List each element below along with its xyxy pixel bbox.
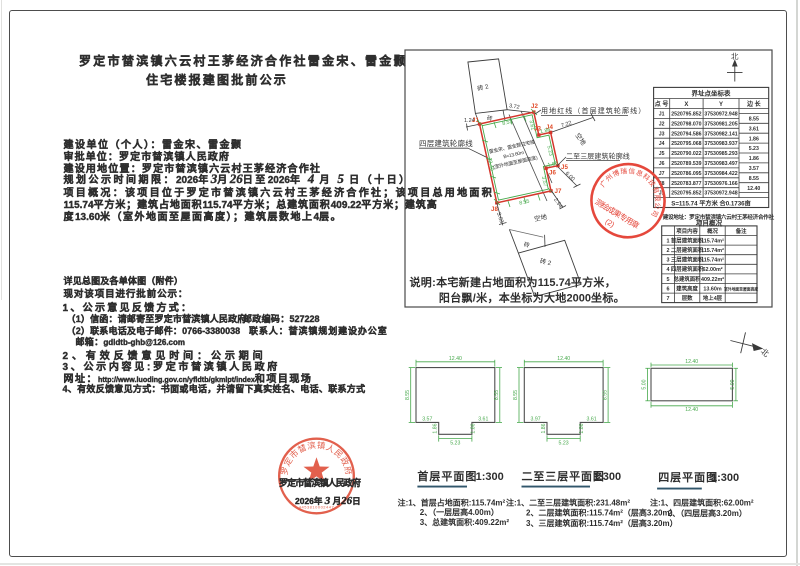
- svg-text:115.74m²: 115.74m²: [701, 258, 724, 264]
- svg-text:5.23: 5.23: [450, 441, 460, 447]
- svg-text:1.86: 1.86: [433, 423, 439, 433]
- svg-text:37530972.948: 37530972.948: [704, 112, 737, 118]
- svg-text:2520798.070: 2520798.070: [671, 121, 701, 127]
- svg-text:8.55: 8.55: [749, 176, 759, 182]
- svg-text:1.86: 1.86: [579, 423, 585, 433]
- svg-text:首层平面图: 首层平面图: [417, 469, 477, 483]
- svg-text:概况: 概况: [707, 227, 718, 235]
- svg-text:1.86: 1.86: [749, 136, 759, 142]
- svg-text:边 长: 边 长: [746, 100, 762, 108]
- svg-text:1.86: 1.86: [471, 423, 477, 433]
- svg-text:J1: J1: [472, 117, 479, 124]
- svg-text:8.55: 8.55: [513, 390, 519, 400]
- svg-text:3.61: 3.61: [749, 126, 759, 132]
- svg-text:7.22: 7.22: [561, 120, 573, 129]
- svg-text:12.40: 12.40: [747, 186, 760, 192]
- svg-text:2520786.095: 2520786.095: [671, 171, 701, 177]
- svg-text:S=115.74 平方米 合0.1736亩: S=115.74 平方米 合0.1736亩: [671, 199, 751, 207]
- svg-text:2520795.852: 2520795.852: [671, 191, 701, 197]
- svg-text:Y: Y: [719, 102, 723, 108]
- svg-text:注:1、首层占地面积:115.74m²: 注:1、首层占地面积:115.74m²: [398, 497, 506, 507]
- svg-text:3、总建筑面积:409.22m²: 3、总建筑面积:409.22m²: [420, 517, 510, 527]
- svg-text:3.61: 3.61: [587, 417, 597, 423]
- svg-text:37530972.948: 37530972.948: [704, 191, 737, 197]
- svg-text:2520783.877: 2520783.877: [671, 181, 701, 187]
- svg-text:2、二层建筑面积:115.74m²（层高3.20m）: 2、二层建筑面积:115.74m²（层高3.20m）: [526, 508, 678, 518]
- svg-text:J6: J6: [549, 170, 556, 177]
- svg-text:1:300: 1:300: [711, 472, 739, 484]
- svg-text:空地: 空地: [533, 212, 548, 224]
- svg-text:砖: 砖: [523, 240, 531, 249]
- svg-text:37530985.293: 37530985.293: [704, 151, 737, 157]
- svg-text:7: 7: [667, 296, 670, 302]
- svg-text:阳台飘/米，本坐标为大地2000坐标。: 阳台飘/米，本坐标为大地2000坐标。: [439, 291, 625, 305]
- svg-text:115.74m²: 115.74m²: [701, 238, 724, 244]
- svg-text:5.23: 5.23: [545, 145, 553, 156]
- svg-text:1:300: 1:300: [476, 471, 504, 483]
- svg-text:5.00: 5.00: [730, 379, 736, 389]
- svg-text:J7: J7: [659, 171, 665, 177]
- svg-text:37530984.422: 37530984.422: [704, 171, 737, 177]
- svg-text:建筑高度: 建筑高度: [675, 284, 698, 292]
- svg-text:2520789.539: 2520789.539: [671, 161, 701, 167]
- svg-text:注:1、二至三层建筑面积:231.48m²: 注:1、二至三层建筑面积:231.48m²: [506, 497, 630, 507]
- svg-text:3.57: 3.57: [749, 166, 759, 172]
- svg-text:界址点坐标表: 界址点坐标表: [692, 89, 732, 98]
- svg-text:1.86: 1.86: [547, 161, 558, 169]
- svg-text:用地红线（首层建筑轮廓线）: 用地红线（首层建筑轮廓线）: [541, 106, 646, 115]
- svg-text:首层建筑面积: 首层建筑面积: [671, 236, 704, 244]
- svg-text:室外地面至屋面高度: 室外地面至屋面高度: [724, 286, 758, 291]
- svg-text:13.60m: 13.60m: [703, 286, 721, 292]
- svg-text:三层建筑面积: 三层建筑面积: [671, 256, 704, 264]
- svg-text:12.40: 12.40: [685, 407, 698, 413]
- svg-text:3.57: 3.57: [540, 176, 548, 187]
- svg-text:8.55: 8.55: [602, 390, 608, 400]
- svg-text:说明:本宅新建占地面积为115.74平方米，: 说明:本宅新建占地面积为115.74平方米，: [410, 275, 617, 289]
- svg-text:37530981.205: 37530981.205: [704, 121, 737, 127]
- svg-text:37530983.937: 37530983.937: [704, 141, 737, 147]
- svg-text:3.63: 3.63: [495, 212, 504, 224]
- svg-text:J5: J5: [659, 151, 665, 157]
- svg-text:J2: J2: [531, 103, 538, 110]
- svg-text:北: 北: [731, 52, 739, 61]
- svg-text:二至三层建筑轮廓线: 二至三层建筑轮廓线: [566, 152, 630, 161]
- svg-text:1:300: 1:300: [593, 471, 621, 483]
- svg-text:8.55: 8.55: [405, 390, 411, 400]
- svg-text:409.22m²: 409.22m²: [701, 277, 724, 283]
- svg-text:2520795.068: 2520795.068: [671, 141, 701, 147]
- svg-text:总建筑面积: 总建筑面积: [674, 275, 702, 283]
- svg-text:2520794.586: 2520794.586: [671, 131, 701, 137]
- svg-text:J2: J2: [659, 121, 665, 127]
- svg-text:1: 1: [667, 238, 670, 244]
- svg-text:J7: J7: [555, 188, 562, 195]
- svg-text:5.23: 5.23: [559, 441, 569, 447]
- svg-text:3.97: 3.97: [531, 417, 541, 423]
- svg-text:四层建筑轮廓线: 四层建筑轮廓线: [419, 138, 473, 148]
- svg-text:二层建筑面积: 二层建筑面积: [671, 246, 704, 254]
- svg-text:项目内容: 项目内容: [676, 227, 698, 235]
- svg-text:3.61: 3.61: [478, 417, 488, 423]
- svg-text:(2): (2): [604, 217, 617, 230]
- svg-text:J1: J1: [659, 112, 665, 118]
- svg-text:X: X: [684, 102, 688, 108]
- svg-text:2: 2: [667, 248, 670, 254]
- svg-text:地上4层: 地上4层: [703, 294, 723, 302]
- svg-text:J5: J5: [561, 164, 568, 171]
- svg-text:四层建筑面积: 四层建筑面积: [671, 265, 704, 273]
- svg-text:3: 3: [667, 258, 670, 264]
- svg-text:点 号: 点 号: [655, 100, 669, 108]
- svg-text:2、（一层层高4.00m）: 2、（一层层高4.00m）: [420, 507, 499, 517]
- svg-text:砖 2: 砖 2: [539, 257, 552, 267]
- svg-text:4: 4: [667, 267, 670, 273]
- svg-text:37530982.141: 37530982.141: [704, 131, 737, 137]
- svg-text:37530983.497: 37530983.497: [704, 161, 737, 167]
- svg-text:1.86: 1.86: [749, 156, 759, 162]
- svg-text:3、三层建筑面积:115.74m²（层高3.20m）: 3、三层建筑面积:115.74m²（层高3.20m）: [526, 518, 678, 528]
- svg-text:1.86: 1.86: [541, 423, 547, 433]
- svg-text:5: 5: [667, 277, 670, 283]
- svg-text:四层平面图: 四层平面图: [658, 471, 718, 484]
- svg-text:砖 2: 砖 2: [476, 82, 489, 93]
- svg-text:12.40: 12.40: [685, 359, 698, 365]
- svg-text:2、（四层层高3.20m）: 2、（四层层高3.20m）: [668, 508, 747, 518]
- svg-text:备注: 备注: [735, 227, 747, 235]
- svg-text:2520790.022: 2520790.022: [671, 151, 701, 157]
- svg-text:6.00: 6.00: [564, 171, 576, 183]
- svg-text:J4: J4: [659, 141, 665, 147]
- svg-text:J3: J3: [659, 131, 665, 137]
- svg-text:8.55: 8.55: [749, 117, 759, 123]
- svg-text:3.57: 3.57: [422, 417, 432, 423]
- svg-text:12.40: 12.40: [557, 356, 570, 362]
- svg-text:12.40: 12.40: [449, 356, 462, 362]
- svg-text:37530976.166: 37530976.166: [704, 181, 737, 187]
- svg-text:J6: J6: [659, 161, 665, 167]
- svg-text:8.55: 8.55: [494, 390, 500, 400]
- svg-text:注:1、四层建筑面积:62.00m²: 注:1、四层建筑面积:62.00m²: [650, 498, 754, 508]
- svg-text:2520795.852: 2520795.852: [671, 112, 701, 118]
- svg-text:空地: 空地: [574, 131, 589, 147]
- svg-text:6: 6: [667, 286, 670, 292]
- svg-text:5.00: 5.00: [642, 379, 648, 389]
- svg-text:5.23: 5.23: [749, 146, 759, 152]
- svg-text:115.74m²: 115.74m²: [701, 248, 724, 254]
- svg-text:62.00m²: 62.00m²: [702, 267, 722, 273]
- svg-text:层数: 层数: [682, 294, 693, 302]
